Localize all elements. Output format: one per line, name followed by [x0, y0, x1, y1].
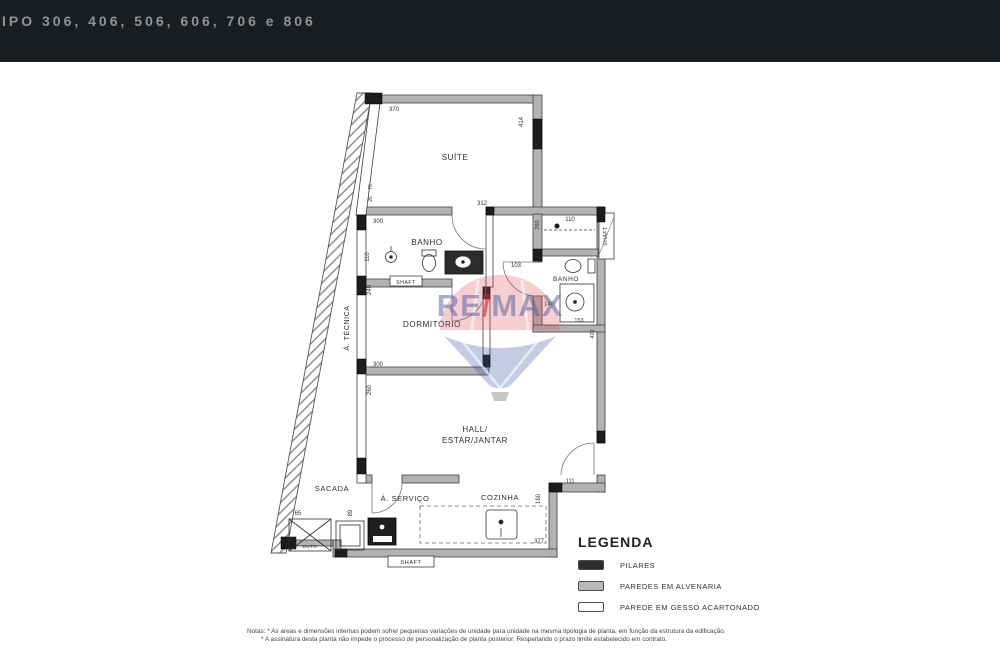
wall-suite-top: [376, 95, 534, 103]
closet-dot: [555, 224, 559, 228]
floorplan-svg: SUÍTE BANHO BANHO DORMITÓRIO Á. TÉCNICA …: [0, 0, 1000, 667]
toilet-1: [423, 255, 436, 272]
room-label-shaft1: SHAFT: [396, 280, 415, 286]
dim-153: 153: [574, 318, 583, 324]
note-line-1: Notas: * As áreas e dimensões internas p…: [247, 628, 807, 636]
room-label-sacada: SACADA: [315, 484, 349, 493]
room-label-hall2: ESTAR/JANTAR: [442, 436, 508, 445]
dim-110a: 110: [365, 252, 371, 262]
dim-240: 240: [367, 284, 373, 295]
legend-label-alvenaria: PAREDES EM ALVENARIA: [620, 582, 722, 591]
legend-row-pilares: PILARES: [578, 560, 760, 570]
room-label-banho1: BANHO: [411, 238, 442, 247]
wall-kitchen-right: [549, 492, 557, 557]
kitchen-sink: [486, 510, 517, 539]
room-label-shaft3: SHAFT: [400, 560, 421, 566]
wall-hall-divider-b: [402, 475, 459, 483]
kitchen-counter: [420, 506, 546, 543]
room-label-shaft2: SHAFT: [603, 226, 609, 245]
toilet-2: [565, 260, 581, 273]
room-label-banho2: BANHO: [553, 276, 579, 283]
legend: LEGENDA PILARES PAREDES EM ALVENARIA PAR…: [578, 534, 760, 623]
room-label-duto: DUTO: [302, 544, 317, 549]
legend-row-alvenaria: PAREDES EM ALVENARIA: [578, 581, 760, 591]
note-line-2: * A assinatura desta planta não impede o…: [261, 636, 807, 644]
wall-suite-bottom-right: [486, 207, 605, 215]
door-arc-suite: [452, 215, 486, 249]
room-label-suite: SUÍTE: [442, 153, 469, 162]
wall-bottom: [335, 549, 557, 557]
remax-watermark: RE/MAX: [437, 275, 564, 401]
dim-140a: 140: [475, 256, 481, 265]
dim-370: 370: [389, 107, 400, 113]
dim-160: 160: [536, 493, 542, 504]
wall-closet-divider: [540, 249, 598, 256]
dim-26: 26: [368, 196, 374, 202]
dim-75: 75: [368, 184, 374, 190]
dim-103: 103: [511, 263, 522, 269]
dim-300b: 300: [373, 362, 384, 368]
dim-110b: 110: [565, 217, 575, 223]
dim-414: 414: [519, 116, 525, 127]
dim-422: 422: [590, 329, 596, 338]
page: IPO 306, 406, 506, 606, 706 e 806: [0, 0, 1000, 667]
legend-label-gesso: PAREDE EM GESSO ACARTONADO: [620, 603, 760, 612]
room-label-hall1: HALL/: [462, 425, 487, 434]
dim-300a: 300: [373, 219, 384, 225]
dim-377: 377: [534, 539, 545, 545]
balloon-basket: [491, 392, 509, 401]
door-arc-entry: [561, 443, 594, 475]
legend-row-gesso: PAREDE EM GESSO ACARTONADO: [578, 602, 760, 612]
dim-89: 89: [348, 509, 354, 516]
footnotes: Notas: * As áreas e dimensões internas p…: [247, 628, 807, 643]
dim-312: 312: [477, 201, 488, 207]
dim-260a: 260: [535, 220, 541, 229]
dim-111: 111: [565, 479, 575, 485]
balloon-fan-blue: [444, 336, 556, 389]
shower-2: [560, 284, 594, 322]
remax-text: RE/MAX: [437, 288, 564, 323]
legend-title: LEGENDA: [578, 534, 760, 550]
wall-suite-right: [533, 95, 542, 215]
legend-swatch-gesso: [578, 602, 604, 612]
dim-260b: 260: [367, 384, 373, 395]
legend-label-pilares: PILARES: [620, 561, 655, 570]
legend-swatch-pilares: [578, 560, 604, 570]
room-label-servico: Á. SERVIÇO: [381, 494, 430, 503]
room-label-area-tecnica: Á. TÉCNICA: [342, 305, 351, 350]
room-label-cozinha: COZINHA: [481, 493, 519, 502]
dim-65: 65: [295, 511, 302, 517]
legend-swatch-alvenaria: [578, 581, 604, 591]
wall-suite-bottom-left: [366, 207, 452, 215]
wall-dorm-bottom: [362, 367, 489, 375]
